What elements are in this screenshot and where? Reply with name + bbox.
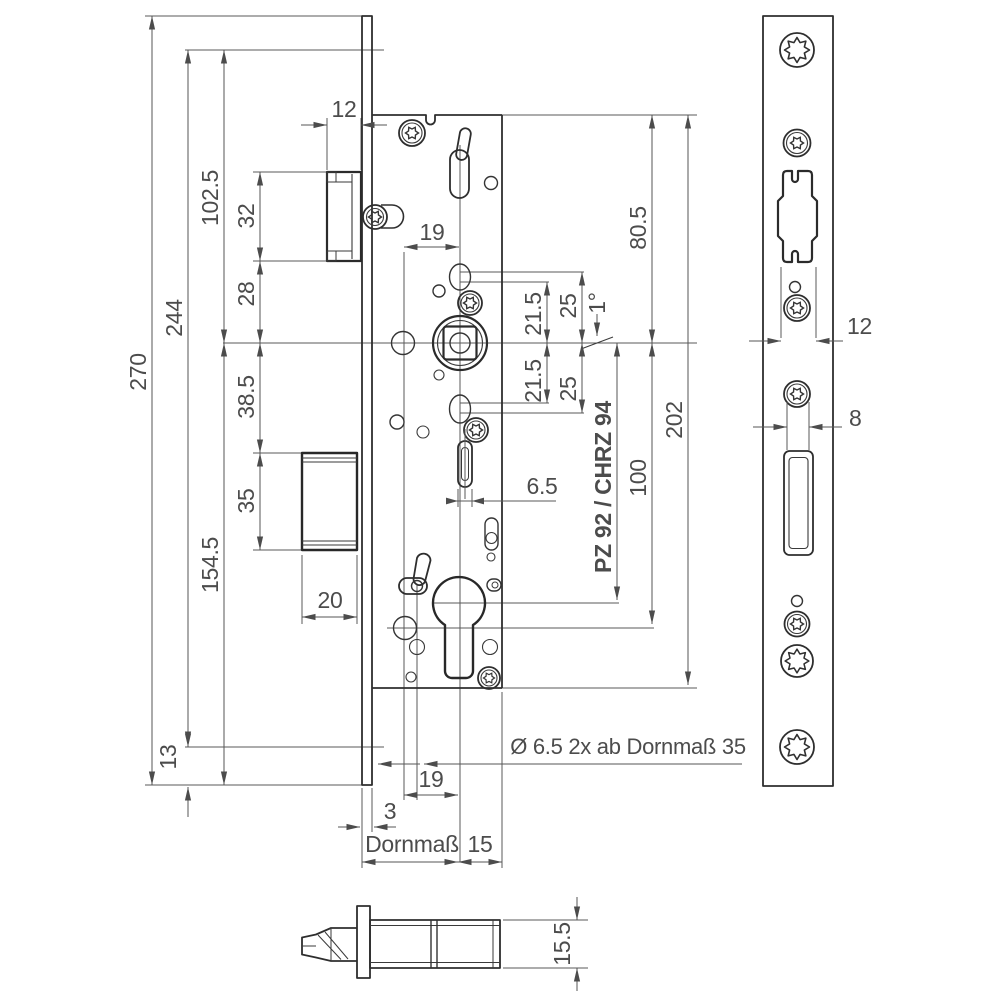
dim-label: 15.5 [549,922,575,966]
dim-label: 19 [420,219,445,245]
technical-drawing: 270 244 102.5 154.5 32 28 38.5 35 [0,0,1000,1000]
latch-section [302,928,357,961]
fixing-screw-lower [785,612,810,637]
dim-label: 28 [233,282,259,307]
dim-label: 100 [625,459,651,496]
dim-label: 244 [161,299,187,337]
note-label: Ø 6.5 2x ab Dornmaß 35 [510,734,746,759]
latch-guide-slot [450,127,472,198]
case-screw-mid [458,291,482,315]
dim-hub-to-hole-upper-inner: 21.5 [520,282,547,343]
adjusting-screw [363,205,404,229]
front-view: 270 244 102.5 154.5 32 28 38.5 35 [125,16,746,868]
dim-label: PZ 92 / CHRZ 94 [590,401,616,573]
fixing-screw-mid [784,295,810,321]
drawing-canvas: 270 244 102.5 154.5 32 28 38.5 35 [0,0,1000,1000]
faceplate-view: 12 8 [749,16,872,786]
dim-case-thickness: 15.5 [503,897,588,991]
pin-hole-lower [792,596,803,607]
dim-label: 102.5 [197,170,223,226]
dim-bolt-slot-width: 8 [753,402,862,450]
dim-label: 35 [233,489,259,514]
deadbolt-cutout [784,451,813,555]
case-hole-small-top [485,177,498,190]
dim-backset: Dornmaß [362,831,459,862]
dim-axis-to-deadbolt: 38.5 [233,343,260,453]
dim-hole-to-axis-lower: 19 [404,766,458,795]
dim-latch-to-axis: 28 [233,261,260,343]
dim-label: 8 [849,405,862,431]
case-hole-b [434,370,444,380]
dim-label: 1° [584,292,610,313]
fixing-screw-upper [784,130,811,157]
pin-hole-upper [790,282,801,293]
slide-slot [485,518,498,561]
dim-faceplate-thickness: 3 [338,798,396,827]
case-hole-f [483,640,498,655]
dim-label: 13 [155,745,181,770]
dim-case-length: 202 [661,115,688,685]
dim-label: 25 [555,294,581,319]
dim-label: 21.5 [520,292,546,336]
case-hole-g [406,672,416,682]
dim-axis-to-bottom: 154.5 [197,343,224,785]
dim-hub-to-hole-lower-outer: 25 [555,343,582,413]
dim-deadbolt-width: 20 [302,587,357,617]
dim-case-top-to-axis: 80.5 [625,115,652,343]
dim-label: 38.5 [233,375,259,419]
case-screw-lower [464,418,488,442]
case-screw-bottom [478,667,500,689]
case-section [370,920,500,968]
dim-label: 270 [125,353,151,390]
dim-label: 32 [233,204,259,229]
torx-screw-top [780,33,814,67]
dim-hub-angle: 1° [581,292,613,349]
dim-centres-variant: PZ 92 / CHRZ 94 [590,343,617,600]
dim-bottom-offset: 13 [155,715,188,817]
latch-bolt [327,172,361,261]
stop-pin [487,579,501,591]
dim-label: 80.5 [625,206,651,250]
dim-channel-width: 12 [749,313,872,341]
dim-label: Dornmaß [365,831,459,857]
dim-axis-to-cylinder-hole: 100 [625,343,652,624]
dim-deadbolt-height: 35 [233,453,260,550]
case-screw-top [399,120,425,146]
dim-latch-protrusion: 12 [301,96,387,125]
fixing-screw-center [784,381,810,407]
dim-label: 12 [847,313,872,339]
dim-label: 3 [384,798,397,824]
dim-axis-to-case-back: 15 [458,831,502,862]
latch-cutout [778,171,817,262]
dim-hub-to-hole-upper-outer: 25 [555,272,582,343]
dim-label: 20 [318,587,343,613]
dim-faceplate-length: 270 [125,16,152,785]
torx-screw-mid-bottom [781,645,813,677]
case-hole-a [433,285,445,297]
faceplate-edge-view [362,16,372,785]
dim-label: 12 [332,96,357,122]
dim-label: 6.5 [526,473,557,499]
dim-hole-to-axis-upper: 19 [404,219,459,247]
dim-label: 15 [468,831,493,857]
dim-hub-to-hole-lower-inner: 21.5 [520,343,547,403]
dim-screw-spacing: 244 [161,50,188,747]
note-fixing-holes: Ø 6.5 2x ab Dornmaß 35 [378,734,746,764]
deadbolt [302,453,357,550]
lock-case [372,115,502,688]
case-hole-d [417,426,429,438]
faceplate-section [357,906,370,978]
dim-label: 19 [419,766,444,792]
case-hole-c [390,415,404,429]
dim-label: 21.5 [520,359,546,403]
dim-label: 25 [555,377,581,402]
dim-label: 154.5 [197,537,223,593]
dim-top-hole-to-axis: 102.5 [197,50,224,343]
section-view: 15.5 [302,897,588,991]
torx-screw-bottom [780,730,814,764]
dim-label: 202 [661,401,687,438]
dim-latch-height: 32 [233,172,260,261]
